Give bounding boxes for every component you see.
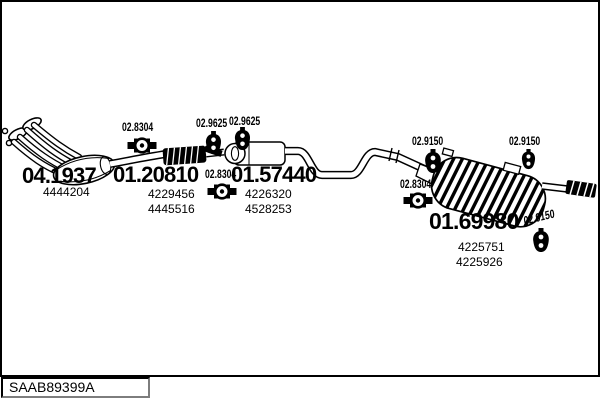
assembly-code-center-pipe: 01.20810 bbox=[113, 164, 198, 186]
part-number: 4445516 bbox=[148, 203, 195, 215]
drawing-code-box: SAAB89399A bbox=[1, 377, 150, 398]
fitting-code-clamp-front: 02.8304 bbox=[122, 121, 153, 133]
drawing-code: SAAB89399A bbox=[9, 379, 95, 395]
fitting-code-hanger-rear-left: 02.9150 bbox=[412, 135, 443, 147]
hanger-icon bbox=[520, 149, 537, 170]
hanger-icon bbox=[531, 228, 551, 253]
tailpipe-tip bbox=[565, 180, 597, 198]
fitting-code-hanger-mid-1: 02.9625 bbox=[196, 117, 227, 129]
part-number: 4226320 bbox=[245, 188, 292, 200]
hanger-icon bbox=[233, 127, 252, 151]
part-number: 4528253 bbox=[245, 203, 292, 215]
fitting-code-hanger-mid-2: 02.9625 bbox=[229, 115, 260, 127]
hanger-icon bbox=[204, 131, 223, 155]
assembly-code-rear-silencer: 01.69980 bbox=[429, 210, 519, 233]
fitting-code-clamp-rear: 02.8304 bbox=[400, 178, 431, 190]
part-number: 4225751 bbox=[458, 241, 505, 253]
hanger-icon bbox=[423, 149, 443, 174]
assembly-code-front-pipe: 04.1937 bbox=[22, 165, 96, 187]
exhaust-diagram-page: 02.8304 02.9625 02.9625 02.8304 02.9150 … bbox=[0, 0, 600, 400]
part-number: 4225926 bbox=[456, 256, 503, 268]
fitting-code-hanger-rear-right: 02.9150 bbox=[509, 135, 540, 147]
exhaust-line-art bbox=[0, 0, 600, 377]
part-number: 4229456 bbox=[148, 188, 195, 200]
assembly-code-middle-silencer: 01.57440 bbox=[231, 164, 316, 186]
part-number: 4444204 bbox=[43, 186, 90, 198]
clamp-icon bbox=[127, 135, 157, 156]
